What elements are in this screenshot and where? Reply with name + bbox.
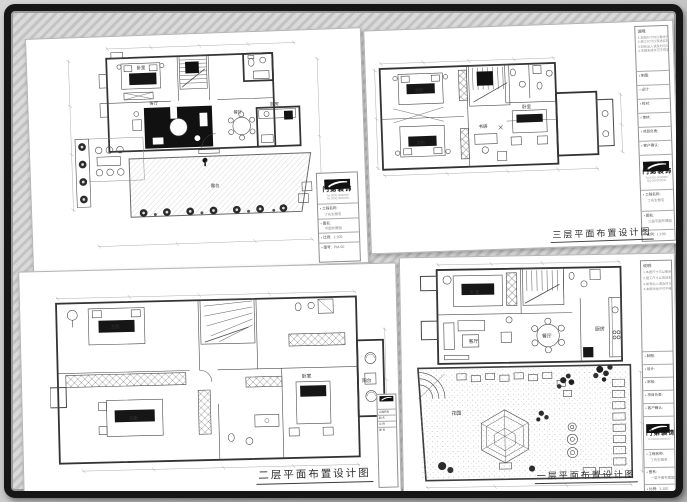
bullet-icon: ▪ <box>645 354 646 358</box>
bed-group <box>510 110 547 146</box>
field-value: 丁先生雅宅 <box>324 211 356 216</box>
field-scale: ▪比例:1:100 <box>645 485 675 497</box>
company-logo: 门第装饰 Tel:0000-0000000 <box>644 417 675 451</box>
room-label: 阳台 <box>362 377 372 384</box>
bullet-icon: ▪ <box>645 406 646 410</box>
field-label: 设计: <box>641 88 649 92</box>
field-label: 工程名称: <box>322 206 338 211</box>
bullet-icon: ▪ <box>645 380 646 384</box>
desk-group <box>474 125 506 161</box>
field-label: 比 例 <box>379 423 385 426</box>
closet-strip <box>246 376 282 387</box>
field-label: 审核: <box>647 380 655 384</box>
room-label: 餐厅 <box>233 108 243 115</box>
field-value: 1:100 <box>659 487 668 491</box>
bathroom-group <box>228 414 280 445</box>
bathroom-group <box>510 65 553 90</box>
field-label: 图 名 <box>379 417 385 420</box>
field-row: ▪设计: <box>637 85 669 100</box>
field-value: 1:100 <box>333 235 342 239</box>
room-label: 客厅 <box>468 338 478 345</box>
field-label: 审核: <box>642 115 650 119</box>
field-label: 图名: <box>649 470 657 474</box>
stairs-group <box>200 299 255 344</box>
field-label: 项目负责: <box>647 393 662 397</box>
field-row: ▪客户确认: <box>639 141 671 156</box>
brush-logo-icon <box>646 420 672 430</box>
field-label: 工程名称: <box>648 452 663 456</box>
field-value: 平面布置图 <box>325 226 357 231</box>
phone-line: QQ:000000000 <box>643 179 671 184</box>
floorplan-third-floor-svg: 主卧 次卧 书房 卧室 <box>371 52 627 182</box>
field-label: 客户确认: <box>643 143 659 148</box>
stairs-group <box>468 65 510 107</box>
field-row: ▪客户确认: <box>643 404 673 418</box>
field-value: 三层平面布置图 <box>648 218 672 223</box>
sheet-title-second-floor: 二层平面布置设计图 <box>256 465 373 485</box>
field-label: 图 号 <box>379 429 385 432</box>
field-value: 1:100 <box>657 232 666 236</box>
field-value: 丁先生雅宅 <box>650 457 672 461</box>
field-value: 一层平面布置图 <box>651 475 673 479</box>
field-number: ▪图号:PM-00 <box>319 242 359 252</box>
field-label: 工程名称 <box>379 411 389 414</box>
field-row: 图 号 <box>378 428 396 434</box>
stairs-group <box>522 268 563 305</box>
phone-line: Tel:0000-0000000 <box>320 197 356 202</box>
closet-strip <box>66 373 186 388</box>
field-label: 比例: <box>323 236 331 240</box>
sheet-title-first-floor: 一层平面布置设计图 <box>535 467 638 484</box>
notes-heading: 说明: <box>643 263 669 269</box>
floorplan-second-floor-svg: 主卧 次卧 卧室 阳台 <box>48 288 392 481</box>
notes-heading: 说明: <box>637 28 665 35</box>
titleblock-tl-partial: 门第装饰 Tel:0000-0000000 Tel:0000-0000000 ▪… <box>316 171 361 262</box>
field-label: 客户确认: <box>648 406 663 410</box>
room-label: 卧室 <box>302 373 312 380</box>
note-line: 4.本图未经许可不得复制转用。 <box>643 287 669 293</box>
field-label: 设计: <box>647 367 655 371</box>
field-value: 丁先生雅宅 <box>647 197 671 202</box>
room-label: 卧室 <box>522 103 532 110</box>
sheet-bottom-right: 卧室 客厅 餐厅 厨房 花园 说明: 1.本图尺寸均以毫米为单位; 2.施工尺寸… <box>399 253 679 498</box>
bullet-icon: ▪ <box>647 487 648 491</box>
room-label: 卧室 <box>136 64 146 71</box>
dimension-lines <box>372 54 625 179</box>
field-label: 制图: <box>647 354 655 358</box>
room-label: 厨房 <box>595 325 605 332</box>
sheet-top-right: 主卧 次卧 书房 卧室 说明: 1.本图尺寸均以毫米为单位; 2.施工尺寸以现场… <box>363 20 681 255</box>
titleblock-notes: 说明: 1.本图尺寸均以毫米为单位; 2.施工尺寸以现场实际为准; 3.如有出入… <box>641 261 673 353</box>
company-logo: 门第装饰 Tel:0000-0000000 Tel:0000-0000000 <box>317 172 358 204</box>
field-row: ▪校对: <box>638 99 670 114</box>
bullet-icon: ▪ <box>647 470 648 474</box>
bed-group <box>443 273 517 307</box>
field-row: ▪设计: <box>643 365 673 379</box>
floorplan-terrace-svg: 卧室 客厅 餐厅 厨房 露台 <box>52 37 331 252</box>
company-logo <box>377 394 395 409</box>
field-row: ▪项目负责: <box>639 127 671 142</box>
titleblock-tr: 说明: 1.本图尺寸均以毫米为单位; 2.施工尺寸以现场实际为准; 3.如有出入… <box>634 25 676 242</box>
bullet-icon: ▪ <box>645 393 646 397</box>
titleblock-br: 说明: 1.本图尺寸均以毫米为单位; 2.施工尺寸以现场实际为准; 3.如有出入… <box>640 260 676 498</box>
field-label: 图名: <box>646 213 654 217</box>
field-number: ▪图号:PM-01 <box>645 496 675 498</box>
bathroom-group <box>295 299 333 314</box>
closet-strip <box>198 390 211 434</box>
field-project: ▪工程名称: 丁先生雅宅 <box>641 190 674 212</box>
field-row: ▪制图: <box>637 71 669 86</box>
sheet-bottom-left: 主卧 次卧 卧室 阳台 工程名称 图 名 比 例 图 号 二层平面布置设计图 <box>18 262 402 498</box>
field-row: ▪制图: <box>643 352 673 366</box>
field-row: ▪审核: <box>643 378 673 392</box>
drawing-board-frame: 卧室 客厅 餐厅 厨房 露台 门第装饰 Tel:0000-0000000 Tel… <box>4 4 683 498</box>
phone-line: Tel:0000-0000000 <box>646 437 672 441</box>
kitchen-group <box>259 109 297 143</box>
bullet-icon: ▪ <box>646 452 647 456</box>
sofa-group <box>132 106 213 150</box>
note-line: 4.本图未经许可不得复制转用。 <box>638 48 666 53</box>
field-project: ▪工程名称: 丁先生雅宅 <box>318 203 358 219</box>
floorplan-first-floor-garden-svg: 卧室 客厅 餐厅 厨房 花园 <box>408 258 652 492</box>
field-label: 图名: <box>323 221 331 225</box>
bed-group <box>67 308 145 346</box>
field-label: 图号: <box>323 245 331 249</box>
stairs-group <box>179 55 207 89</box>
field-label: 校对: <box>642 102 650 106</box>
field-label: 比例: <box>649 487 657 491</box>
company-logo: 门第装饰 Tel:0000-0000000 QQ:000000000 <box>640 155 673 191</box>
field-project: ▪工程名称: 丁先生雅宅 <box>644 450 674 469</box>
house-walls <box>437 267 622 364</box>
field-drawing-name: ▪图名: 一层平面布置图 <box>645 468 675 486</box>
sheet-title-third-floor: 三层平面布置设计图 <box>550 224 653 243</box>
bathroom-group <box>569 269 600 287</box>
garden-group <box>418 364 632 481</box>
bed-group <box>288 381 333 436</box>
field-value: PM-00 <box>334 245 345 249</box>
closet-strip <box>289 333 345 346</box>
sofa-group <box>444 317 513 360</box>
bullet-icon: ▪ <box>645 367 646 371</box>
field-row: ▪项目负责: <box>643 391 673 405</box>
field-drawing-name: ▪图名: 平面布置图 <box>318 218 358 234</box>
sheet-top-left: 卧室 客厅 餐厅 厨房 露台 门第装饰 Tel:0000-0000000 Tel… <box>25 27 369 275</box>
titleblock-notes: 说明: 1.本图尺寸均以毫米为单位; 2.施工尺寸以现场实际为准; 3.如有出入… <box>635 26 669 72</box>
room-label: 客厅 <box>149 100 159 107</box>
bathroom-group <box>248 55 269 79</box>
planter-flowers-left <box>75 139 91 207</box>
room-label: 餐厅 <box>542 332 552 339</box>
field-row: ▪审核: <box>638 113 670 128</box>
field-label: 工程名称: <box>645 192 661 197</box>
field-label: 项目负责: <box>643 129 659 134</box>
room-label: 书房 <box>478 123 488 130</box>
balcony-chairs <box>364 352 377 401</box>
field-label: 制图: <box>641 74 649 78</box>
dining-table-group <box>228 111 255 140</box>
titleblock-bl-partial: 工程名称 图 名 比 例 图 号 <box>376 393 398 487</box>
